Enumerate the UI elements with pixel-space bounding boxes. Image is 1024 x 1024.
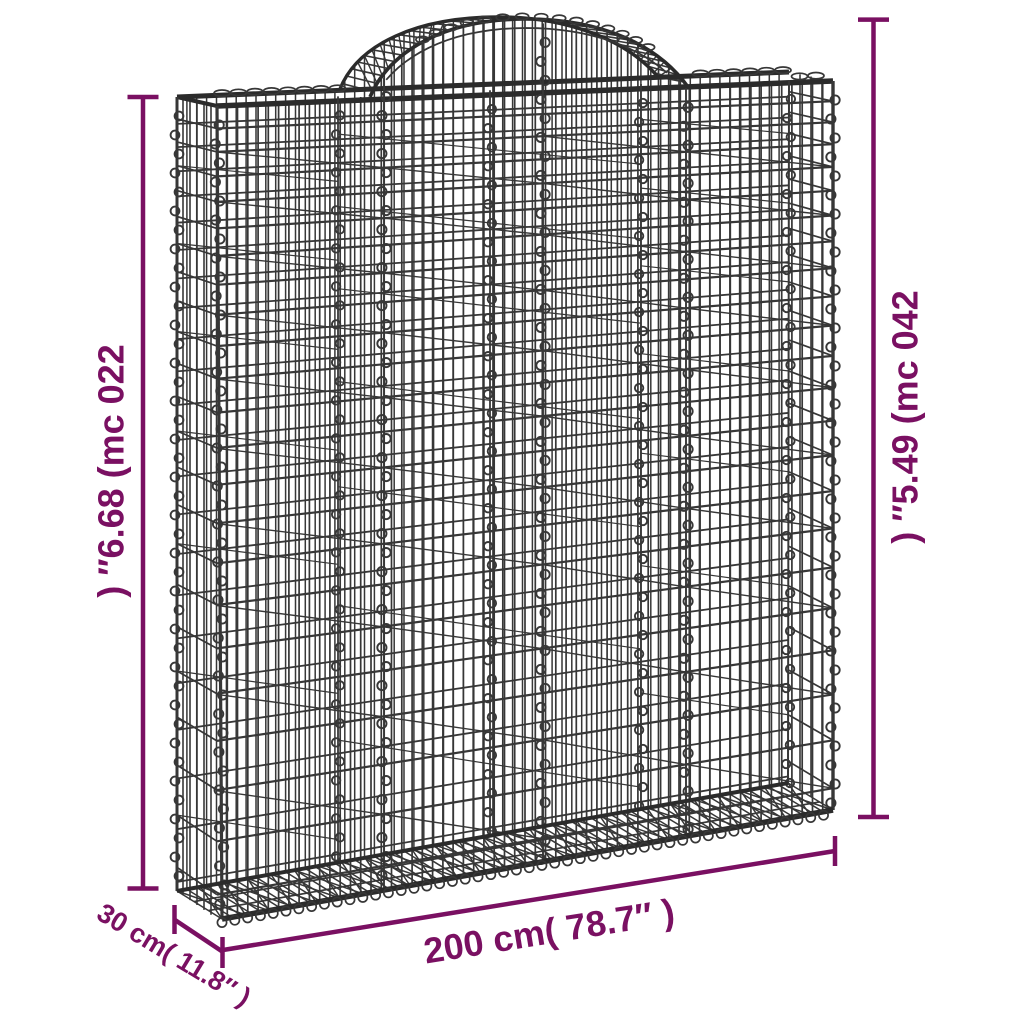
svg-text:) ″6.68 (mc 022: ) ″6.68 (mc 022 <box>91 344 132 597</box>
svg-text:200 cm( 78.7″ ): 200 cm( 78.7″ ) <box>421 891 678 972</box>
svg-text:) ″5.49 (mc 042: ) ″5.49 (mc 042 <box>885 290 926 543</box>
